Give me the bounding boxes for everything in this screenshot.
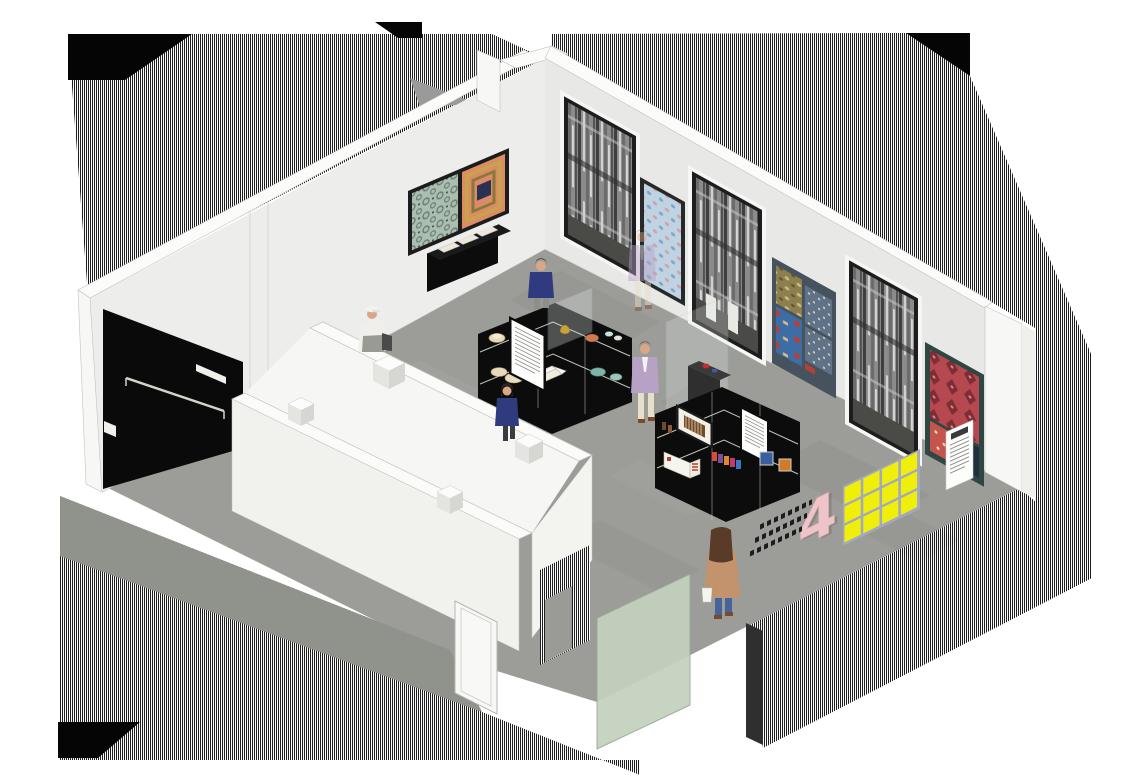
- right-wall-outer-sliver: [1022, 324, 1035, 498]
- attendant-apron: [362, 335, 384, 352]
- lav-leg-l: [638, 392, 644, 421]
- red-panel-caption-sheet: [946, 420, 973, 490]
- white-plinth-2: [728, 301, 738, 335]
- navy2-head: [503, 387, 512, 396]
- navy2-leg-l: [503, 424, 508, 441]
- small-plate-2: [614, 336, 622, 341]
- lav-head: [640, 344, 650, 354]
- small-plate-1: [605, 332, 613, 337]
- lav-leg-r: [648, 391, 654, 419]
- camel-leg-l: [715, 595, 722, 617]
- gallery-axonometric-scene: 4 4: [0, 0, 1134, 783]
- red-object: [703, 364, 710, 369]
- right-wall-end-cap: [985, 306, 1022, 492]
- coral-plate: [586, 334, 599, 342]
- cap-brim: [372, 310, 380, 313]
- illustration-canvas: 4 4: [0, 0, 1134, 783]
- cream-plate-1: [491, 368, 507, 377]
- camel-shoe-r: [725, 612, 733, 616]
- navy2-sweater: [495, 398, 519, 426]
- white-bag: [702, 588, 712, 602]
- blue-framed-tile: [760, 452, 773, 465]
- orange-framed-tile: [779, 459, 791, 471]
- lav-shoe-r: [648, 417, 655, 421]
- brown-bottle-2: [668, 425, 672, 433]
- camel-long-hair: [709, 527, 733, 563]
- camel-shoe-l: [714, 615, 722, 619]
- navy1-head: [536, 261, 546, 271]
- dish-centre: [493, 334, 502, 339]
- teal-plate-3: [610, 374, 622, 381]
- blue-object: [712, 369, 717, 372]
- lav-shoe-l: [638, 419, 645, 423]
- navy1-sweater: [528, 272, 554, 298]
- teal-plate-2: [591, 368, 606, 376]
- attendant-bag: [382, 333, 392, 351]
- floor-cut-sliver: [746, 623, 763, 745]
- brown-bottle-1: [662, 422, 666, 430]
